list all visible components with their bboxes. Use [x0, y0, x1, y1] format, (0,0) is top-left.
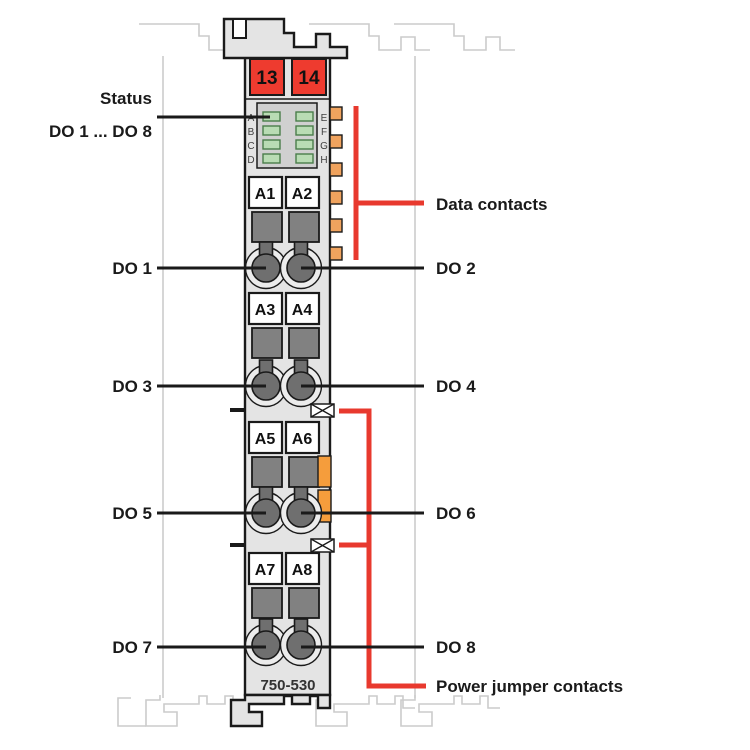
status-led-b	[263, 126, 280, 135]
neighbor-foot-far-left	[118, 698, 146, 726]
data-contact-icon	[330, 219, 342, 232]
model-number: 750-530	[260, 677, 315, 694]
power-jumper-contact-icon	[318, 456, 331, 487]
led-letter-c: C	[247, 141, 254, 152]
status-led-h	[296, 154, 313, 163]
terminal-label-a3: A3	[255, 302, 276, 319]
label-do2: DO 2	[436, 259, 476, 278]
status-led-g	[296, 140, 313, 149]
power-jumper-bracket	[339, 411, 426, 686]
label-power-jumper-contacts: Power jumper contacts	[436, 677, 623, 696]
label-do6: DO 6	[436, 504, 476, 523]
led-letter-g: G	[320, 141, 328, 152]
led-letter-b: B	[248, 127, 255, 138]
status-led-c	[263, 140, 280, 149]
data-contacts-bracket	[356, 106, 424, 260]
clamp-opening	[252, 328, 282, 358]
led-letter-f: F	[321, 127, 327, 138]
terminal-label-a2: A2	[292, 186, 313, 203]
clamp-opening	[252, 457, 282, 487]
terminal-label-a7: A7	[255, 562, 276, 579]
data-contact-icon	[330, 135, 342, 148]
terminal-label-a4: A4	[292, 302, 313, 319]
data-contact-icon	[330, 191, 342, 204]
clamp-opening	[252, 588, 282, 618]
led-letter-d: D	[247, 155, 254, 166]
power-terminal-13-label: 13	[256, 68, 277, 89]
status-led-f	[296, 126, 313, 135]
data-contact-icon	[330, 247, 342, 260]
status-led-e	[296, 112, 313, 121]
led-letter-e: E	[321, 113, 328, 124]
clamp-opening	[289, 457, 319, 487]
label-do1: DO 1	[112, 259, 152, 278]
label-do3: DO 3	[112, 377, 152, 396]
label-data-contacts: Data contacts	[436, 195, 547, 214]
terminal-label-a5: A5	[255, 431, 276, 448]
label-do8: DO 8	[436, 638, 476, 657]
neighbor-foot-far-right	[401, 695, 500, 726]
module-foot	[231, 695, 330, 726]
wire-port	[287, 631, 315, 659]
power-terminal-14-label: 14	[298, 68, 320, 89]
label-do7: DO 7	[112, 638, 152, 657]
status-led-d	[263, 154, 280, 163]
wire-port	[252, 631, 280, 659]
terminal-label-a6: A6	[292, 431, 313, 448]
clamp-opening	[289, 588, 319, 618]
label-status: Status	[100, 89, 152, 108]
led-letter-h: H	[320, 155, 327, 166]
diagram-canvas: 13 14 A B C D E F G H A1 A2 A3 A4	[0, 0, 750, 750]
label-do5: DO 5	[112, 504, 152, 523]
latch-slot	[233, 19, 246, 38]
label-do4: DO 4	[436, 377, 476, 396]
terminal-label-a1: A1	[255, 186, 276, 203]
clamp-opening	[289, 328, 319, 358]
label-status-range: DO 1 ... DO 8	[49, 122, 152, 141]
data-contact-icon	[330, 107, 342, 120]
terminal-label-a8: A8	[292, 562, 313, 579]
clamp-opening	[289, 212, 319, 242]
module-diagram: 13 14 A B C D E F G H A1 A2 A3 A4	[0, 0, 750, 750]
clamp-opening	[252, 212, 282, 242]
data-contact-icon	[330, 163, 342, 176]
